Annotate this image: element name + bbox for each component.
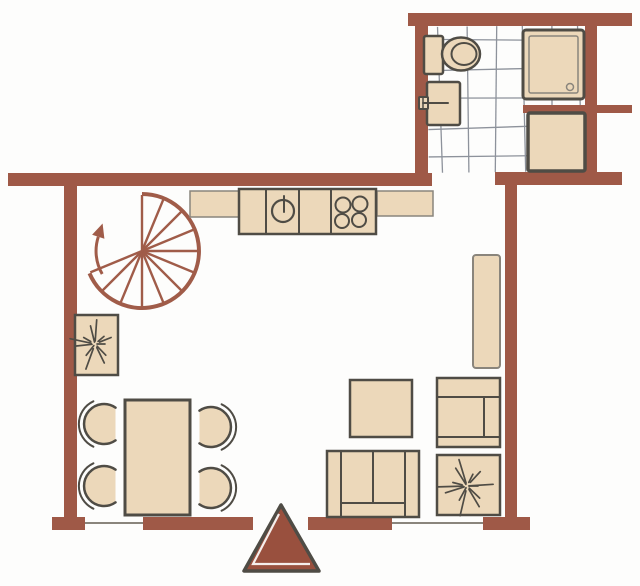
chair-seat (84, 466, 115, 506)
bottom-wall-right (308, 517, 392, 530)
coffee-table (350, 380, 412, 437)
toilet-tank (424, 36, 443, 74)
kitchen-counter-left (190, 191, 240, 217)
dining-chair-top-right (200, 404, 237, 449)
dining-table (125, 400, 190, 515)
chair-seat (84, 404, 115, 444)
bathroom-top-wall (408, 13, 632, 26)
potted-plant-right (437, 455, 500, 516)
shower-tray (523, 30, 584, 99)
dining-chair-bottom-left (79, 463, 116, 508)
kitchen-counter-right (377, 191, 433, 216)
dining-chair-bottom-right (200, 465, 237, 510)
bottom-wall-left (143, 517, 253, 530)
plant-leaf (438, 486, 463, 487)
dining-chair-top-left (79, 401, 116, 446)
bathroom-bottom-wall (495, 172, 622, 185)
chair-seat (200, 468, 231, 508)
potted-plant-left (70, 315, 118, 375)
wall-shelf (473, 255, 500, 368)
right-wall (505, 185, 517, 518)
bathroom-right-wall (585, 26, 597, 173)
kitchen-counter-main (239, 189, 376, 234)
chair-seat (200, 407, 231, 447)
floor-plan-image (0, 0, 640, 586)
main-top-wall (8, 173, 432, 186)
washing-machine (528, 113, 585, 171)
bottom-wall-right-corner (483, 517, 530, 530)
bottom-wall-left-corner (52, 517, 85, 530)
floor-plan-canvas (0, 0, 640, 586)
